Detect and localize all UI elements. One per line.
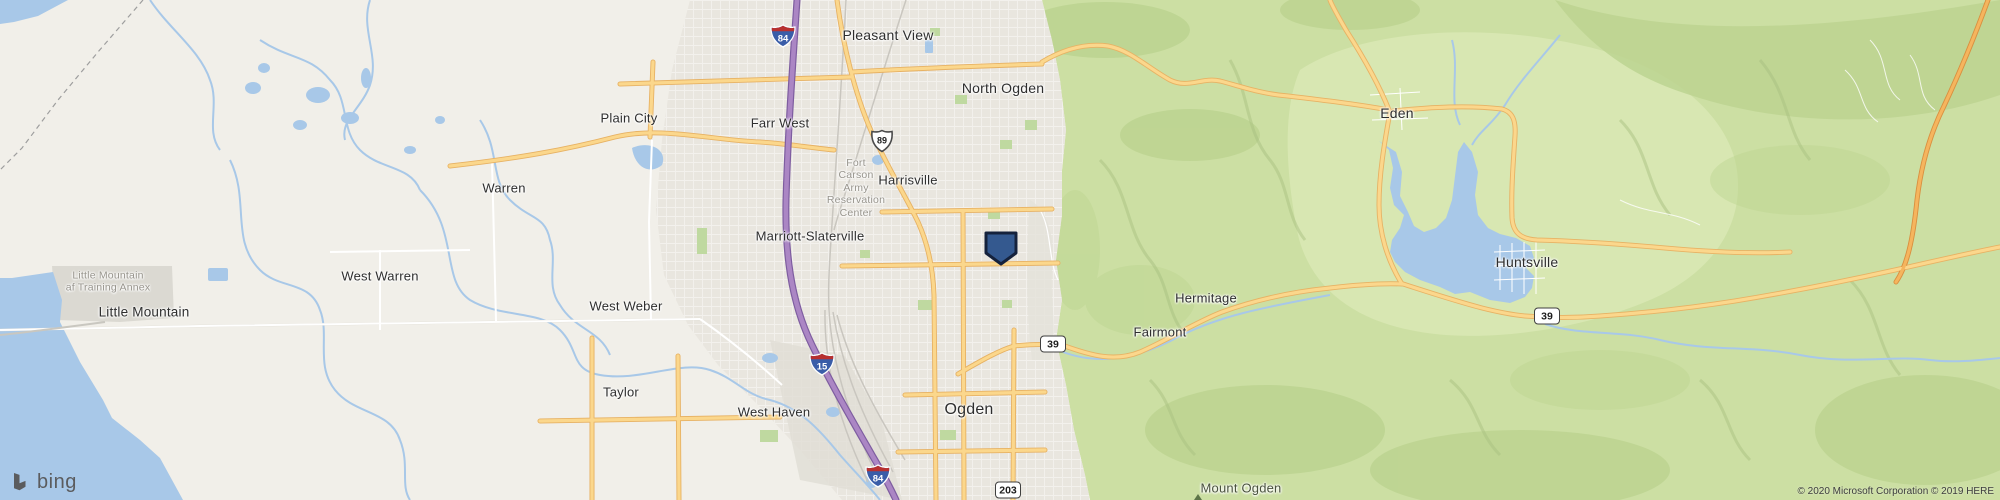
mountain-peak-icon: [1192, 494, 1204, 500]
label-plain-city: Plain City: [601, 111, 658, 126]
interstate-15-shield: 15: [809, 352, 836, 377]
sr-39-shield-west: 39: [1040, 336, 1066, 353]
label-taylor: Taylor: [603, 385, 639, 400]
label-north-ogden: North Ogden: [962, 80, 1044, 96]
bing-logo-text: bing: [37, 471, 77, 494]
svg-text:89: 89: [877, 136, 887, 146]
map-canvas[interactable]: Pleasant View North Ogden Plain City Far…: [0, 0, 2000, 500]
label-eden: Eden: [1380, 105, 1414, 121]
label-huntsville: Huntsville: [1496, 254, 1559, 270]
label-harrisville: Harrisville: [878, 173, 937, 188]
sr-39-shield-east: 39: [1534, 308, 1560, 325]
label-west-warren: West Warren: [341, 269, 418, 284]
label-warren: Warren: [482, 181, 525, 196]
label-west-haven: West Haven: [738, 405, 811, 420]
label-hermitage: Hermitage: [1175, 291, 1237, 306]
map-pushpin[interactable]: [984, 231, 1018, 272]
sr-203-shield: 203: [995, 482, 1021, 499]
label-pleasant-view: Pleasant View: [842, 27, 933, 43]
label-mount-ogden: Mount Ogden: [1201, 481, 1282, 496]
svg-text:84: 84: [873, 474, 884, 485]
label-fairmont: Fairmont: [1134, 325, 1187, 340]
us-89-shield: 89: [870, 129, 894, 153]
label-farr-west: Farr West: [751, 116, 810, 131]
svg-text:84: 84: [778, 34, 789, 45]
label-little-mountain-annex: Little Mountain af Training Annex: [66, 270, 151, 295]
label-little-mountain: Little Mountain: [99, 305, 190, 320]
map-attribution: © 2020 Microsoft Corporation © 2019 HERE: [1798, 486, 1995, 497]
interstate-84-shield-south: 84: [865, 464, 892, 489]
svg-text:15: 15: [817, 362, 828, 373]
bing-logo[interactable]: bing: [10, 471, 77, 494]
interstate-84-shield: 84: [770, 24, 797, 49]
label-west-weber: West Weber: [589, 299, 662, 314]
label-ogden: Ogden: [944, 401, 993, 419]
label-fort-carson: Fort Carson Army Reservation Center: [827, 157, 885, 219]
label-marriott-slaterville: Marriott-Slaterville: [756, 229, 865, 244]
bing-b-icon: [10, 472, 31, 494]
